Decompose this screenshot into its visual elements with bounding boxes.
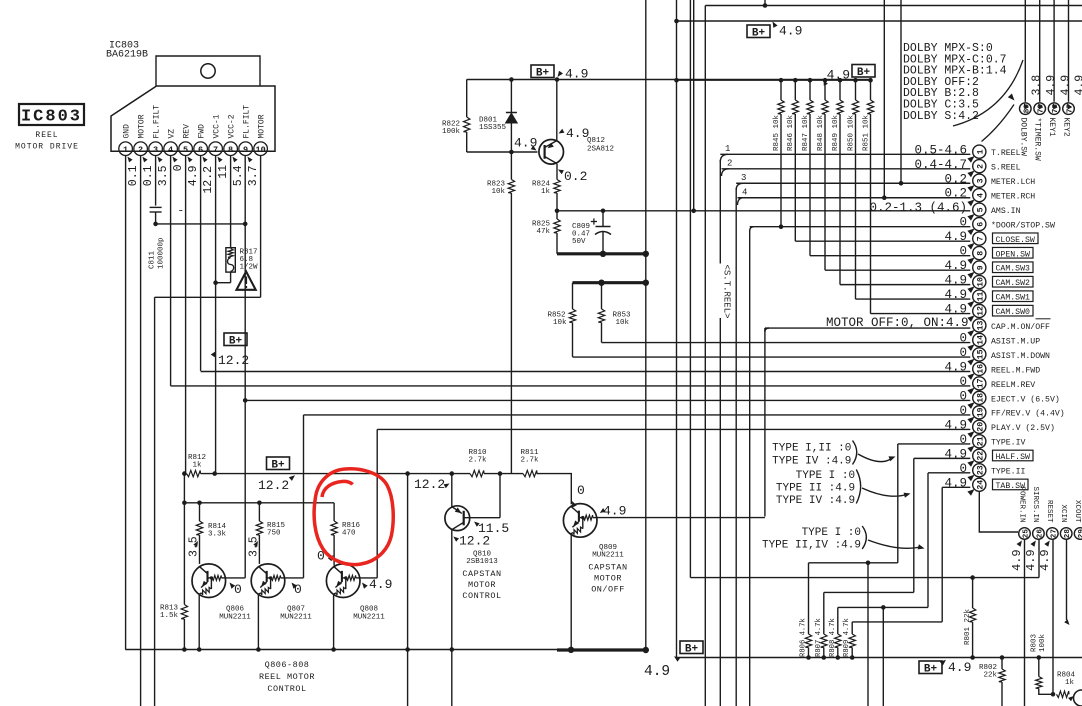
svg-text:4.9: 4.9: [944, 288, 967, 302]
svg-text:R801 22k: R801 22k: [964, 608, 972, 645]
svg-text:1k: 1k: [541, 188, 551, 196]
svg-text:ASIST.M.DOWN: ASIST.M.DOWN: [991, 352, 1050, 361]
svg-text:4.9: 4.9: [944, 418, 967, 432]
svg-text:23: 23: [977, 465, 986, 475]
svg-text:KEY1: KEY1: [1047, 118, 1056, 137]
svg-text:REV: REV: [183, 124, 192, 139]
svg-text:R809 4.7k: R809 4.7k: [843, 618, 851, 657]
svg-text:MUN2211: MUN2211: [280, 614, 312, 622]
svg-text:B+: B+: [271, 459, 285, 471]
svg-text:<S.T.REEL>: <S.T.REEL>: [721, 265, 731, 319]
svg-text:3.7: 3.7: [247, 165, 260, 186]
svg-text:EJECT.V (6.5V): EJECT.V (6.5V): [991, 394, 1060, 404]
svg-text:4.9: 4.9: [369, 577, 392, 592]
svg-text:4.9: 4.9: [948, 660, 971, 675]
svg-text:4.9: 4.9: [1024, 549, 1038, 571]
svg-text:R803: R803: [1030, 633, 1038, 652]
svg-text:B+: B+: [229, 335, 243, 347]
svg-text:1/2W: 1/2W: [240, 264, 259, 272]
svg-text:24: 24: [977, 480, 986, 490]
svg-text:26: 26: [1036, 529, 1044, 539]
svg-text:CONTROL: CONTROL: [267, 684, 306, 694]
svg-text:R808 4.7k: R808 4.7k: [829, 618, 837, 657]
svg-text:ASIST.M.UP: ASIST.M.UP: [991, 337, 1040, 346]
svg-text:MOTOR DRIVE: MOTOR DRIVE: [15, 143, 79, 152]
svg-text:XCIN: XCIN: [1059, 504, 1067, 522]
svg-text:2: 2: [727, 159, 732, 169]
svg-text:FL.FILT: FL.FILT: [153, 105, 162, 139]
svg-text:-: -: [178, 206, 185, 218]
svg-text:4.9: 4.9: [1038, 549, 1052, 571]
svg-text:CAP.M.ON/OFF: CAP.M.ON/OFF: [991, 322, 1050, 332]
svg-text:4.9: 4.9: [1045, 75, 1058, 96]
svg-text:19: 19: [977, 407, 986, 417]
svg-text:750: 750: [267, 530, 281, 538]
svg-text:12.2: 12.2: [202, 166, 215, 194]
svg-text:3.5: 3.5: [157, 165, 170, 186]
svg-text:R847 10k: R847 10k: [802, 114, 810, 151]
svg-text:7: 7: [213, 145, 218, 155]
svg-text:MOTOR: MOTOR: [138, 114, 147, 138]
svg-text:2.7k: 2.7k: [468, 457, 487, 465]
svg-text:C811: C811: [149, 250, 157, 269]
svg-text:1: 1: [725, 144, 730, 154]
svg-text:0: 0: [959, 346, 967, 360]
svg-text:MOTOR: MOTOR: [594, 574, 622, 584]
svg-text:1k: 1k: [1065, 679, 1075, 687]
svg-text:4.9: 4.9: [187, 165, 200, 186]
svg-text:2.7k: 2.7k: [520, 457, 539, 465]
svg-text:4.9: 4.9: [944, 259, 967, 273]
svg-text:CONTROL: CONTROL: [462, 591, 501, 601]
svg-text:9: 9: [977, 265, 986, 270]
svg-text:TYPE.II: TYPE.II: [991, 468, 1025, 477]
svg-text:13: 13: [977, 320, 986, 330]
svg-text:3: 3: [153, 145, 158, 155]
svg-text:4.9: 4.9: [944, 274, 967, 288]
svg-text:IC803: IC803: [21, 108, 82, 127]
svg-text:MOTOR: MOTOR: [258, 114, 267, 138]
svg-text:2SA812: 2SA812: [587, 146, 614, 154]
svg-text:R850 10k: R850 10k: [847, 114, 855, 151]
svg-text:RESET: RESET: [1045, 500, 1053, 523]
svg-text:11: 11: [217, 165, 230, 179]
svg-text:8: 8: [228, 145, 233, 155]
svg-text:17: 17: [977, 378, 986, 388]
svg-text:27: 27: [1050, 529, 1058, 539]
svg-text:GND: GND: [123, 124, 132, 139]
svg-text:R851 10k: R851 10k: [862, 114, 870, 151]
svg-text:4.9: 4.9: [565, 67, 588, 82]
svg-text:ON/OFF: ON/OFF: [591, 585, 625, 595]
svg-text:4.9: 4.9: [944, 361, 967, 375]
svg-text:0: 0: [959, 462, 967, 476]
svg-text:8: 8: [977, 251, 986, 256]
svg-text:FWD: FWD: [198, 124, 207, 139]
svg-text:5: 5: [183, 145, 188, 155]
svg-text:6: 6: [977, 222, 986, 227]
svg-text:0.2: 0.2: [944, 172, 967, 186]
svg-text:R846 10k: R846 10k: [787, 114, 795, 151]
svg-text:12.2: 12.2: [218, 353, 249, 368]
svg-text:22k: 22k: [983, 672, 997, 680]
svg-text:7: 7: [977, 236, 986, 241]
svg-text:VCC-2: VCC-2: [228, 114, 237, 138]
svg-text:0.2: 0.2: [564, 169, 587, 184]
svg-text:4.9: 4.9: [644, 664, 670, 680]
svg-text:0.1: 0.1: [127, 165, 140, 186]
svg-text:R845 10k: R845 10k: [773, 114, 781, 151]
svg-text:100k: 100k: [1039, 633, 1047, 652]
svg-text:METER.RCH: METER.RCH: [991, 193, 1035, 202]
svg-text:POWER.IN: POWER.IN: [1017, 486, 1025, 522]
svg-text:CAPSTAN: CAPSTAN: [462, 569, 501, 579]
svg-text:0: 0: [172, 164, 185, 171]
svg-text:REELM.REV: REELM.REV: [991, 381, 1035, 390]
svg-text:0.4-4.7: 0.4-4.7: [914, 158, 967, 172]
svg-text:Q807: Q807: [287, 606, 305, 614]
svg-text:VZ: VZ: [168, 129, 177, 139]
svg-text:10k: 10k: [553, 319, 567, 327]
svg-text:16: 16: [977, 364, 986, 374]
svg-text:0.2: 0.2: [944, 187, 967, 201]
svg-text:B+: B+: [857, 67, 871, 79]
svg-text:B+: B+: [685, 643, 699, 655]
svg-text:4.9: 4.9: [944, 447, 967, 461]
svg-text:47k: 47k: [536, 228, 550, 236]
svg-text:CLOSE.SW: CLOSE.SW: [996, 236, 1035, 245]
svg-text:T.REEL: T.REEL: [991, 149, 1021, 158]
svg-text:0: 0: [959, 216, 967, 230]
svg-text:FF/REV.V (4.4V): FF/REV.V (4.4V): [991, 409, 1065, 419]
svg-text:2: 2: [977, 164, 986, 169]
svg-text:28: 28: [1064, 529, 1072, 539]
svg-text:3.3k: 3.3k: [208, 531, 227, 539]
svg-text:TYPE IV :4.9: TYPE IV :4.9: [772, 455, 851, 467]
svg-text:0: 0: [294, 582, 302, 597]
svg-text:B+: B+: [536, 67, 550, 79]
svg-text:3.5: 3.5: [248, 536, 261, 557]
svg-text:TYPE I :0: TYPE I :0: [802, 527, 861, 539]
svg-text:REEL: REEL: [35, 131, 58, 140]
svg-text:0.5-4.6: 0.5-4.6: [914, 143, 967, 157]
svg-text:12.2: 12.2: [459, 534, 490, 549]
svg-text:B+: B+: [924, 663, 938, 675]
svg-text:0: 0: [959, 332, 967, 346]
svg-text:4.9: 4.9: [944, 303, 967, 317]
svg-text:1k: 1k: [192, 462, 202, 470]
svg-text:6: 6: [198, 145, 203, 155]
svg-text:R848 10k: R848 10k: [817, 114, 825, 151]
svg-text:4.9: 4.9: [1074, 75, 1082, 96]
svg-text:0.1: 0.1: [142, 165, 155, 186]
svg-text:OPEN.SW: OPEN.SW: [996, 250, 1030, 259]
svg-text:1SS355: 1SS355: [479, 124, 507, 132]
svg-text:2SB1013: 2SB1013: [466, 558, 498, 566]
svg-text:AMS.IN: AMS.IN: [991, 207, 1021, 216]
svg-text:0: 0: [959, 433, 967, 447]
svg-text:TYPE I,II :0: TYPE I,II :0: [772, 442, 851, 454]
svg-text:100k: 100k: [442, 128, 461, 136]
svg-text:4.9: 4.9: [1059, 75, 1072, 96]
svg-text:REEL.M.FWD: REEL.M.FWD: [991, 366, 1040, 375]
svg-text:0: 0: [959, 245, 967, 259]
svg-text:R849 10k: R849 10k: [832, 114, 840, 151]
svg-text:4.9: 4.9: [944, 476, 967, 490]
svg-text:METER.LCH: METER.LCH: [991, 178, 1035, 187]
svg-text:29: 29: [1078, 529, 1082, 539]
svg-text:15: 15: [977, 349, 986, 359]
svg-text:FL.FILT: FL.FILT: [243, 105, 252, 139]
svg-text:470: 470: [342, 530, 356, 538]
svg-text:4.9: 4.9: [603, 504, 626, 519]
svg-text:MUN2211: MUN2211: [353, 614, 385, 622]
svg-text:TYPE II,IV :4.9: TYPE II,IV :4.9: [762, 539, 861, 551]
svg-text:Q806-808: Q806-808: [265, 660, 310, 670]
svg-text:0: 0: [234, 582, 242, 597]
svg-text:SIRCS.IN: SIRCS.IN: [1031, 486, 1039, 522]
svg-text:CAM.SW0: CAM.SW0: [996, 308, 1030, 317]
svg-text:S.REEL: S.REEL: [991, 164, 1021, 173]
svg-text:5.4: 5.4: [232, 165, 245, 186]
svg-text:4: 4: [977, 193, 986, 198]
svg-text:10k: 10k: [616, 319, 630, 327]
svg-text:0: 0: [577, 483, 585, 498]
svg-text:KEY2: KEY2: [1062, 118, 1071, 137]
svg-text:4.9: 4.9: [944, 230, 967, 244]
svg-text:4: 4: [168, 145, 173, 155]
svg-text:3.5: 3.5: [188, 536, 201, 557]
svg-text:18: 18: [977, 393, 986, 403]
svg-text:5: 5: [977, 207, 986, 212]
svg-text:XCOUT: XCOUT: [1073, 500, 1081, 523]
svg-text:Q806: Q806: [226, 606, 245, 614]
svg-text:PLAY.V (2.5V): PLAY.V (2.5V): [991, 423, 1055, 433]
svg-text:50V: 50V: [572, 238, 586, 246]
svg-text:MUN2211: MUN2211: [219, 614, 251, 622]
svg-text:25: 25: [1023, 529, 1031, 539]
svg-text:3.8: 3.8: [1031, 75, 1044, 96]
svg-text:0: 0: [959, 404, 967, 418]
svg-text:CAM.SW2: CAM.SW2: [996, 279, 1030, 288]
svg-text:3: 3: [741, 173, 746, 183]
svg-text:1.5k: 1.5k: [160, 612, 179, 620]
svg-text:22: 22: [977, 451, 986, 461]
svg-text:TYPE IV :4.9: TYPE IV :4.9: [776, 495, 855, 507]
svg-text:MUN2211: MUN2211: [592, 552, 624, 560]
svg-text:4.9: 4.9: [566, 126, 589, 141]
svg-text:VCC-1: VCC-1: [213, 114, 222, 138]
svg-text:REEL MOTOR: REEL MOTOR: [259, 672, 315, 682]
svg-text:Q808: Q808: [360, 606, 378, 614]
svg-text:R807 4.7k: R807 4.7k: [815, 618, 823, 657]
svg-text:*TIMER.SW: *TIMER.SW: [1033, 118, 1042, 161]
svg-text:21: 21: [977, 436, 986, 446]
svg-text:TYPE.IV: TYPE.IV: [991, 439, 1025, 448]
svg-text:0: 0: [959, 389, 967, 403]
svg-text:HALF.SW: HALF.SW: [996, 453, 1030, 462]
svg-text:10k: 10k: [491, 188, 505, 196]
svg-text:10: 10: [255, 145, 265, 155]
svg-text:MOTOR: MOTOR: [468, 580, 496, 590]
svg-text:100000p: 100000p: [158, 237, 166, 269]
svg-text:CAM.SW3: CAM.SW3: [996, 265, 1030, 274]
svg-text:CAM.SW1: CAM.SW1: [996, 294, 1030, 303]
svg-text:9: 9: [243, 145, 248, 155]
svg-text:TYPE I :0: TYPE I :0: [796, 470, 855, 482]
svg-text:2: 2: [138, 145, 143, 155]
svg-text:Q812: Q812: [587, 137, 605, 145]
svg-text:20: 20: [977, 422, 986, 432]
svg-text:14: 14: [977, 335, 986, 345]
svg-text:1: 1: [123, 145, 128, 155]
svg-text:CAPSTAN: CAPSTAN: [588, 563, 627, 573]
svg-text:11: 11: [977, 291, 986, 301]
svg-text:*DOOR/STOP.SW: *DOOR/STOP.SW: [991, 221, 1055, 231]
svg-text:R806 4.7k: R806 4.7k: [800, 618, 808, 657]
svg-text:4: 4: [742, 188, 747, 198]
svg-text:1: 1: [977, 149, 986, 154]
svg-text:3: 3: [977, 178, 986, 183]
svg-text:0.2-1.3 (4.6): 0.2-1.3 (4.6): [869, 201, 967, 215]
svg-text:10: 10: [977, 277, 986, 287]
svg-text:12.2: 12.2: [414, 477, 445, 492]
svg-text:4.9: 4.9: [779, 24, 802, 39]
svg-text:B+: B+: [752, 27, 766, 39]
svg-text:TYPE II :4.9: TYPE II :4.9: [776, 482, 855, 494]
svg-text:BA6219B: BA6219B: [106, 50, 148, 61]
svg-text:0: 0: [959, 375, 967, 389]
svg-text:4.9: 4.9: [1010, 549, 1024, 571]
svg-text:12: 12: [977, 306, 986, 316]
svg-text:12.2: 12.2: [258, 478, 289, 493]
